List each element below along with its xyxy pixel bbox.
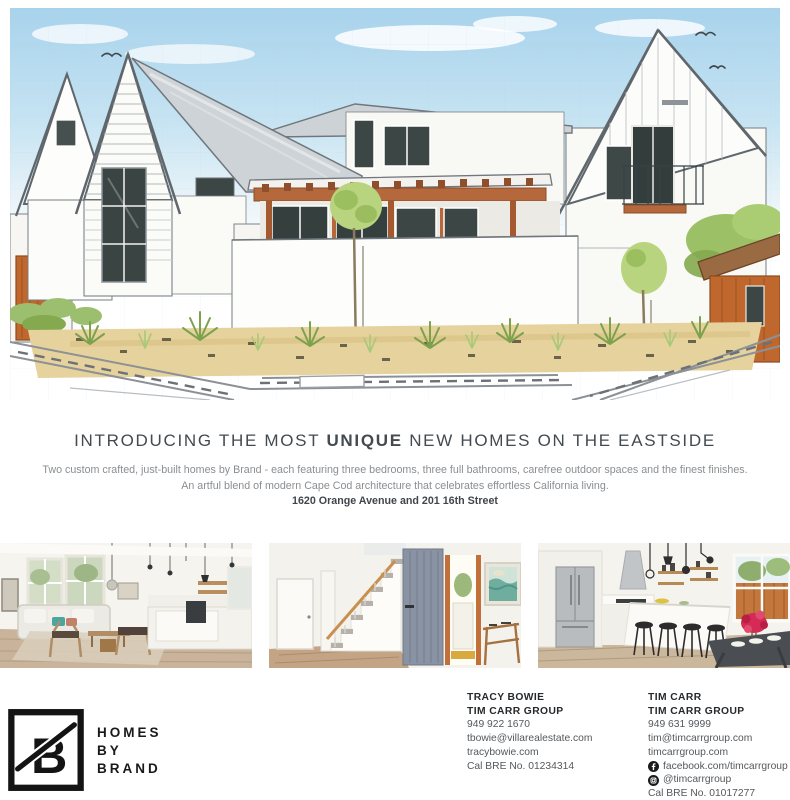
agent-phone: 949 631 9999 [648, 718, 790, 732]
photo-kitchen-dining [538, 543, 790, 668]
instagram-icon [648, 775, 659, 786]
agent-license: Cal BRE No. 01234314 [467, 760, 647, 774]
agent-email[interactable]: tbowie@villarealestate.com [467, 732, 647, 746]
property-addresses: 1620 Orange Avenue and 201 16th Street [0, 494, 790, 510]
facebook-handle: facebook.com/timcarrgroup [663, 760, 788, 774]
photo-great-room-svg [0, 543, 252, 668]
facebook-icon [648, 761, 659, 772]
flyer-page: INTRODUCING THE MOST UNIQUE NEW HOMES ON… [0, 0, 790, 800]
agent-group: TIM CARR GROUP [467, 705, 647, 719]
instagram-row[interactable]: @timcarrgroup [648, 773, 790, 787]
agent-phone: 949 922 1670 [467, 718, 647, 732]
agent-website[interactable]: timcarrgroup.com [648, 746, 790, 760]
photo-entry-staircase [269, 543, 521, 668]
headline-emphasis: UNIQUE [326, 431, 402, 450]
photo-entry-staircase-svg [269, 543, 521, 668]
headline-post: NEW HOMES ON THE EASTSIDE [403, 431, 716, 450]
contact-tracy-bowie: TRACY BOWIE TIM CARR GROUP 949 922 1670 … [467, 691, 647, 773]
agent-license: Cal BRE No. 01017277 [648, 787, 790, 800]
hero-illustration-svg [10, 8, 780, 400]
facebook-row[interactable]: facebook.com/timcarrgroup [648, 760, 790, 774]
logo-wordmark: HOMES BY BRAND [97, 724, 162, 778]
agent-name: TRACY BOWIE [467, 691, 647, 705]
headline-pre: INTRODUCING THE MOST [74, 431, 326, 450]
intro-line-1: Two custom crafted, just-built homes by … [0, 463, 790, 479]
agent-email[interactable]: tim@timcarrgroup.com [648, 732, 790, 746]
photo-kitchen-dining-svg [538, 543, 790, 668]
logo-word-homes: HOMES [97, 724, 162, 742]
brand-b-logo-icon: B [6, 708, 86, 792]
homes-by-brand-logo: B [6, 708, 86, 792]
intro-line-2: An artful blend of modern Cape Cod archi… [0, 479, 790, 495]
headline: INTRODUCING THE MOST UNIQUE NEW HOMES ON… [0, 431, 790, 451]
logo-word-brand: BRAND [97, 760, 162, 778]
contact-tim-carr: TIM CARR TIM CARR GROUP 949 631 9999 tim… [648, 691, 790, 800]
logo-word-by: BY [97, 742, 162, 760]
photo-great-room [0, 543, 252, 668]
intro-copy: Two custom crafted, just-built homes by … [0, 463, 790, 510]
instagram-handle: @timcarrgroup [663, 773, 731, 787]
photo-strip [0, 543, 790, 668]
agent-name: TIM CARR [648, 691, 790, 705]
agent-group: TIM CARR GROUP [648, 705, 790, 719]
agent-website[interactable]: tracybowie.com [467, 746, 647, 760]
hero-illustration [10, 8, 780, 400]
